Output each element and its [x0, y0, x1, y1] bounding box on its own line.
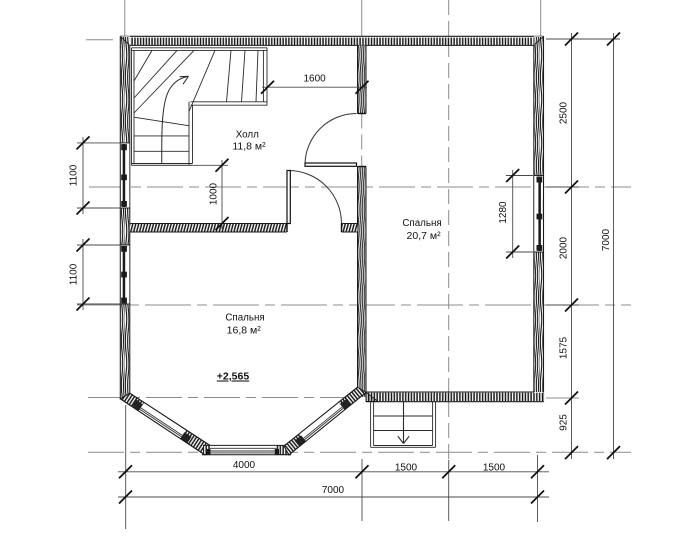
svg-text:1100: 1100 — [69, 164, 80, 186]
svg-text:20,7 м²: 20,7 м² — [407, 230, 442, 242]
svg-text:1500: 1500 — [395, 462, 418, 473]
svg-text:Холл: Холл — [236, 130, 259, 141]
svg-text:1000: 1000 — [209, 182, 220, 205]
svg-text:Спальня: Спальня — [402, 218, 441, 229]
svg-text:1500: 1500 — [483, 462, 506, 473]
svg-text:16,8 м²: 16,8 м² — [227, 324, 262, 336]
svg-text:7000: 7000 — [322, 485, 345, 496]
svg-text:4000: 4000 — [233, 460, 256, 471]
svg-text:Спальня: Спальня — [225, 312, 264, 323]
svg-text:+2,565: +2,565 — [217, 371, 250, 383]
svg-text:1575: 1575 — [559, 336, 570, 359]
svg-text:1280: 1280 — [498, 201, 509, 224]
svg-text:7000: 7000 — [601, 228, 612, 251]
svg-text:11,8 м²: 11,8 м² — [232, 140, 266, 152]
svg-text:2000: 2000 — [559, 236, 570, 259]
svg-text:1100: 1100 — [69, 263, 80, 285]
svg-text:925: 925 — [559, 414, 570, 431]
svg-text:2500: 2500 — [559, 101, 570, 124]
svg-text:1600: 1600 — [303, 73, 326, 84]
